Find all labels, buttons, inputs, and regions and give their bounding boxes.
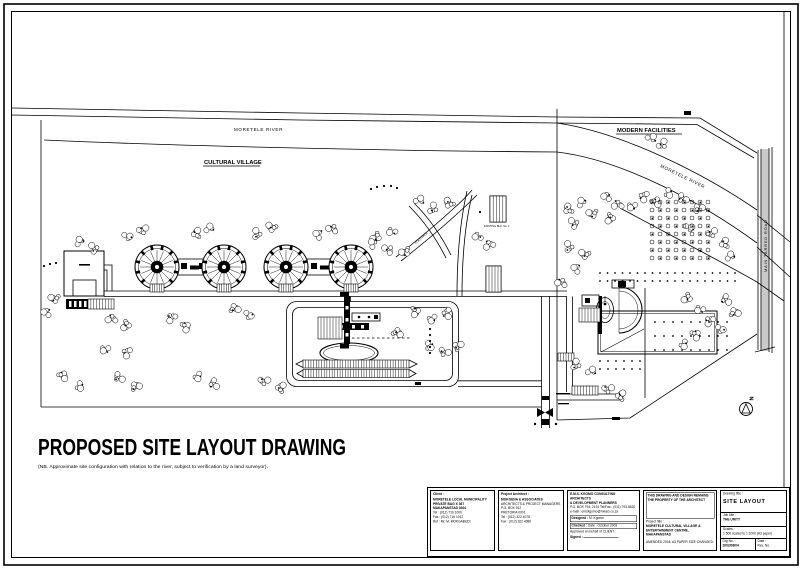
outer-border <box>4 4 798 565</box>
title-block-consultant-panel: E.M.S. KGOMO CONSULTING ARCHITECTS & DEV… <box>567 490 640 551</box>
architect-line: Fax : (012) 322 4080 <box>501 520 561 524</box>
title-block: Client : MORETELE LOCAL MUNICIPALITY PRI… <box>427 487 790 557</box>
drg-no-value: 2003/08/04 <box>722 544 753 548</box>
label-main-road: MAIN TARRED ROAD <box>763 219 768 272</box>
signed-label: Signed : <box>570 536 583 540</box>
title-block-architect-panel: Project Architect : MOKOENA & ASSOCIATES… <box>498 490 564 551</box>
client-header: Client : <box>433 493 492 497</box>
label-existing-building: EXISTING BLD. No. 1 <box>484 224 510 228</box>
title-block-client-panel: Client : MORETELE LOCAL MUNICIPALITY PRI… <box>430 490 495 551</box>
job-title-value: THE UNITY <box>723 518 785 522</box>
checked-value: Date : October 2003 <box>588 524 617 528</box>
title-block-project-panel: THIS DRAWING AND DESIGN REMAINS THE PROP… <box>643 490 718 551</box>
amendment-note: AMENDED 2004, A3 PAPER SIZE CHANGED. <box>646 541 715 545</box>
sheet-title: PROPOSED SITE LAYOUT DRAWING <box>38 434 346 460</box>
title-block-drawing-panel: Drawing title : SITE LAYOUT Job title : … <box>720 490 788 551</box>
site-plan-svg: MORETELE RIVER CULTURAL VILLAGE MODERN F… <box>0 0 802 569</box>
drawing-title-value: SITE LAYOUT <box>723 498 785 505</box>
label-moretele-river-left: MORETELE RIVER <box>234 127 283 132</box>
consultant-line: e-mail : emskgomo@mweb.co.za <box>570 510 637 514</box>
consultant-line: E.M.S. KGOMO CONSULTING ARCHITECTS <box>570 493 637 502</box>
architect-header: Project Architect : <box>501 493 561 497</box>
project-title-line: ENTERTAINMENT CENTRE, MAKAPANSTAD <box>646 529 715 538</box>
label-cultural-village: CULTURAL VILLAGE <box>204 160 262 166</box>
scales-value: 1:500 scaled to 1:1000 (A3 paper) <box>723 532 785 536</box>
checked-label: Checked : <box>572 524 588 528</box>
drawing-title-label: Drawing title : <box>723 492 785 496</box>
label-modern-facilities: MODERN FACILITIES <box>617 128 676 134</box>
designed-label: Designed : <box>572 516 589 520</box>
drawing-sheet: MORETELE RIVER CULTURAL VILLAGE MODERN F… <box>0 0 802 569</box>
label-north: N <box>748 397 754 401</box>
ownership-heading: THIS DRAWING AND DESIGN REMAINS THE PROP… <box>646 493 715 519</box>
rev-label: Rev. No. <box>757 544 784 548</box>
designed-value: M. Kgomo <box>589 516 604 520</box>
client-line: Ref : Mr. M. MOKGABUDI <box>433 520 492 524</box>
signature-line <box>584 535 619 539</box>
sheet-note: (NB. Approximate site configuration with… <box>38 464 268 469</box>
